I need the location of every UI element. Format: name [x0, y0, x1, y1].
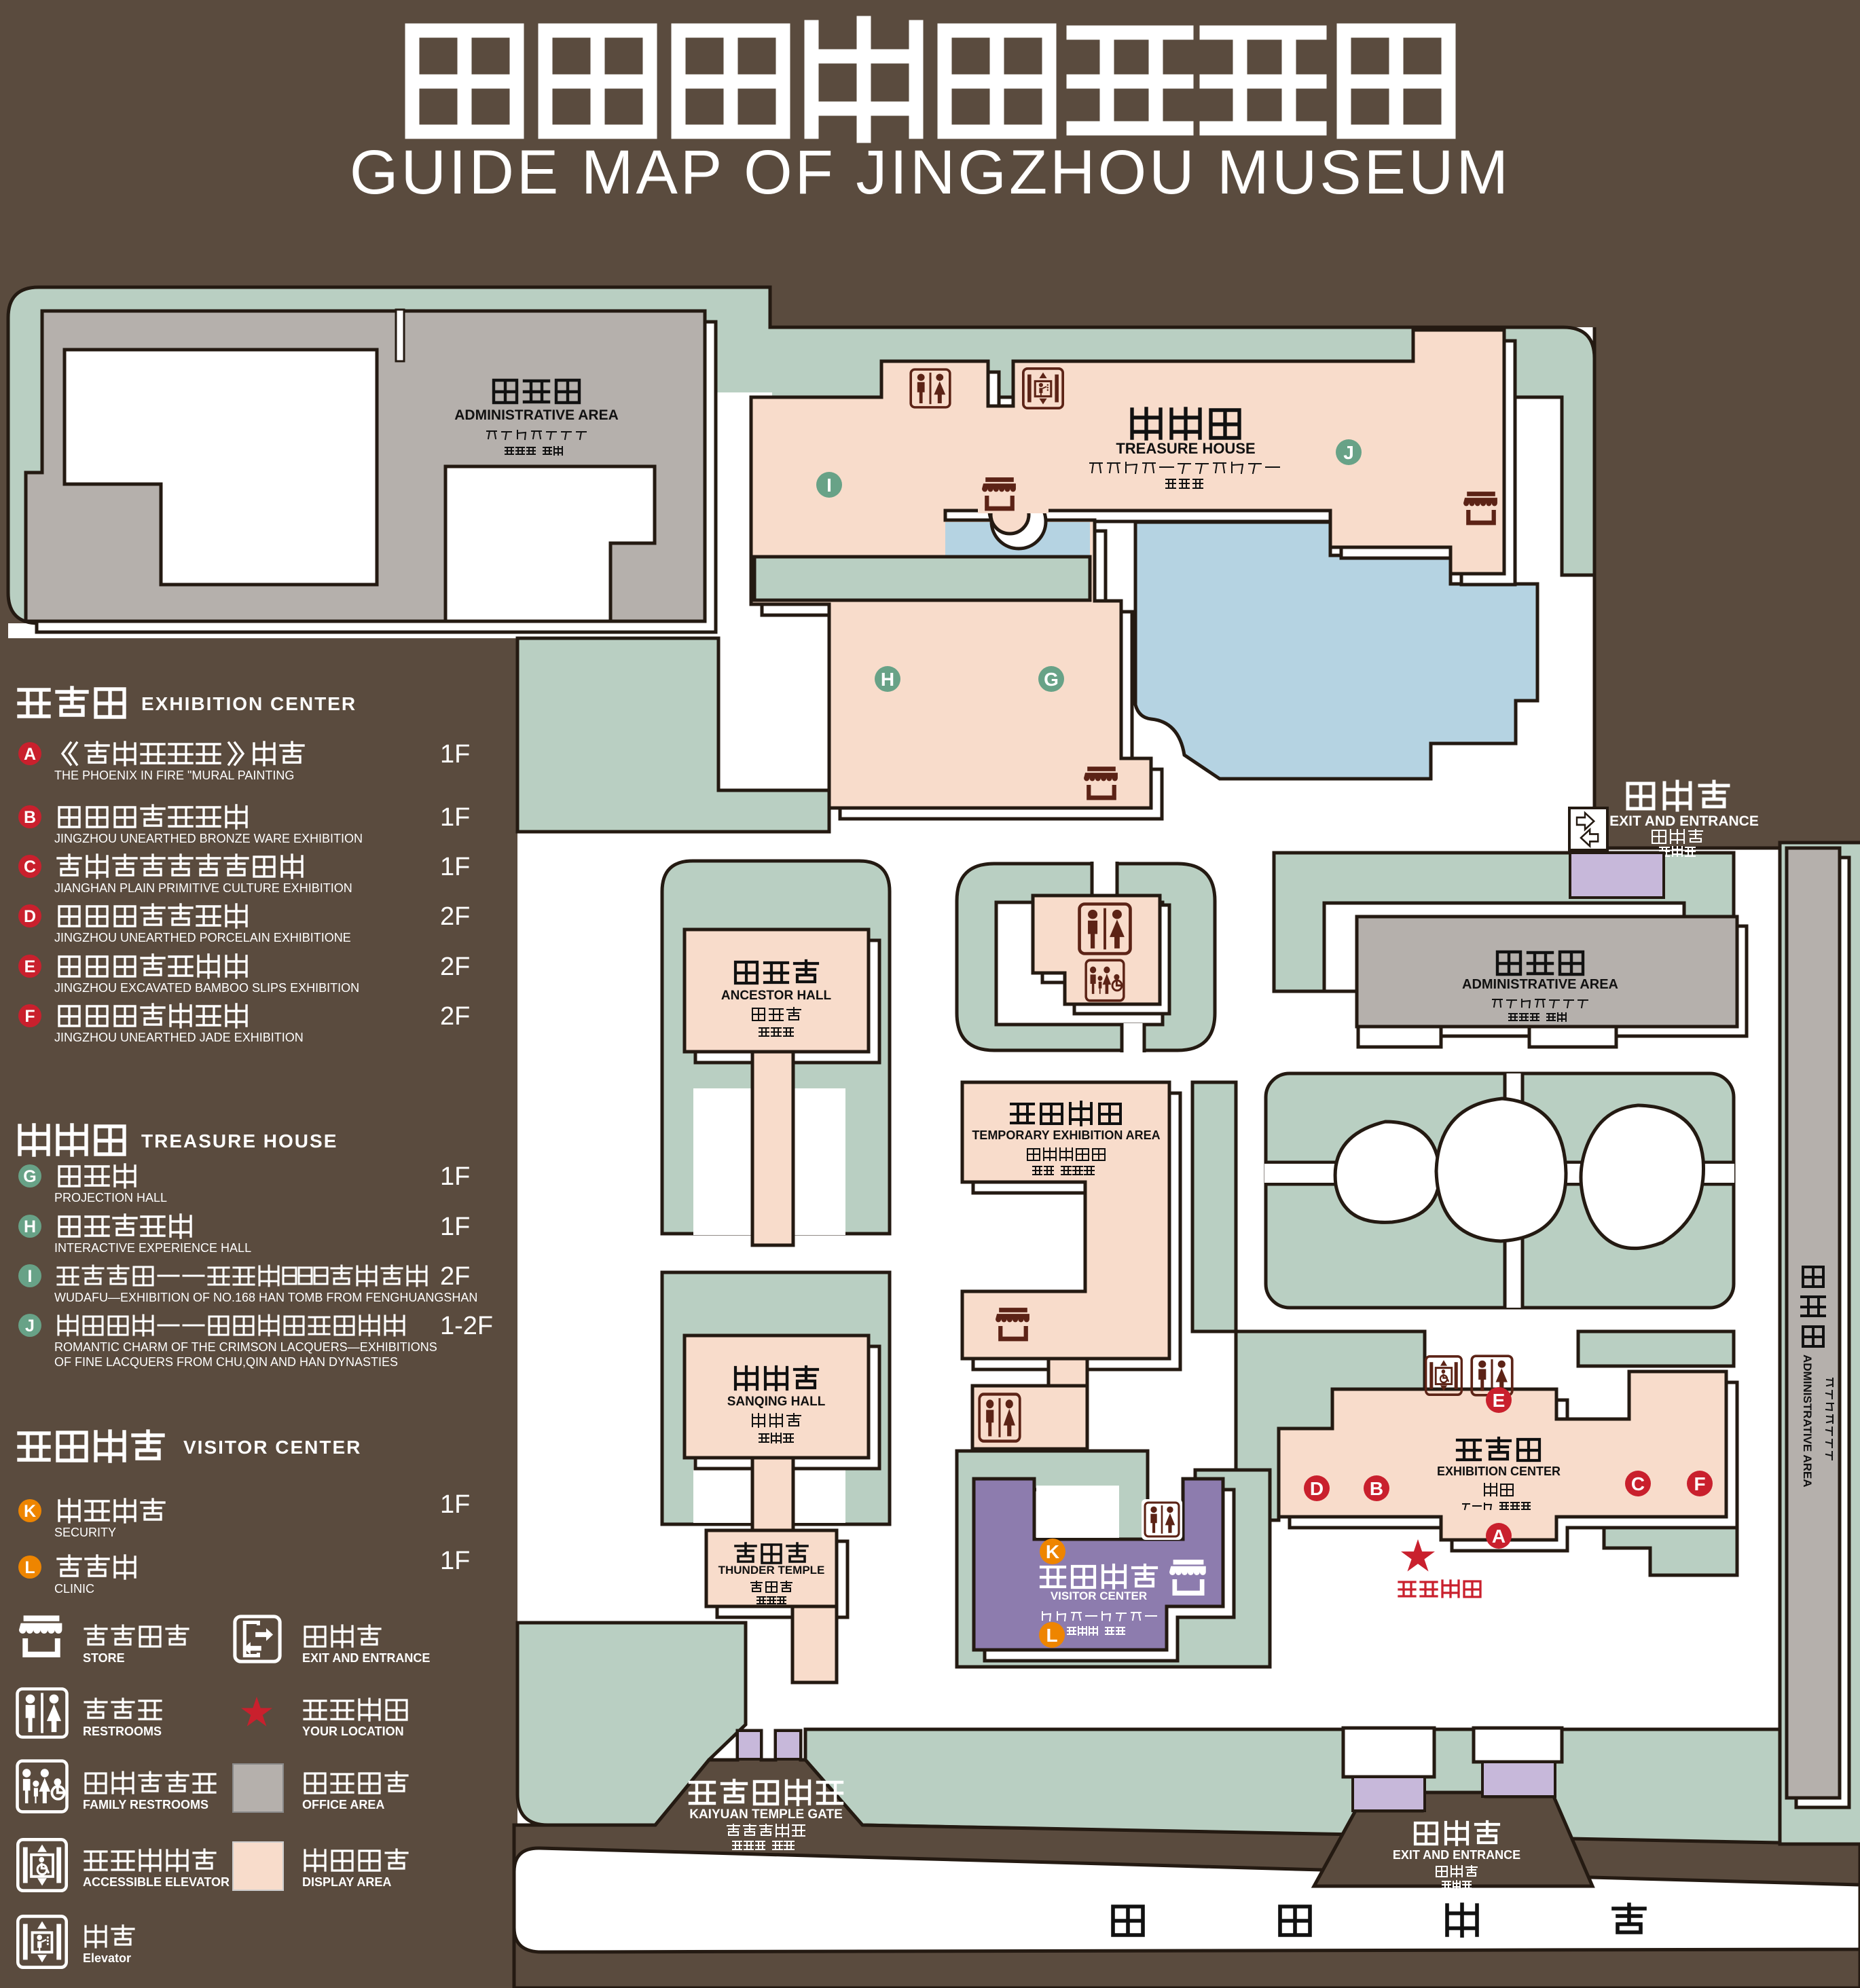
svg-text:INTERACTIVE EXPERIENCE HALL: INTERACTIVE EXPERIENCE HALL — [54, 1241, 251, 1255]
svg-text:JINGZHOU UNEARTHED PORCELAIN E: JINGZHOU UNEARTHED PORCELAIN EXHIBITIONE — [54, 931, 351, 944]
svg-text:OF FINE LACQUERS FROM CHU,QIN: OF FINE LACQUERS FROM CHU,QIN AND HAN DY… — [54, 1355, 398, 1369]
svg-text:ADMINISTRATIVE AREA: ADMINISTRATIVE AREA — [1801, 1355, 1814, 1488]
svg-text:2F: 2F — [440, 1002, 470, 1031]
svg-text:JINGZHOU UNEARTHED JADE EXHIBI: JINGZHOU UNEARTHED JADE EXHIBITION — [54, 1031, 304, 1044]
svg-text:STORE: STORE — [83, 1651, 125, 1665]
svg-text:KAIYUAN TEMPLE GATE: KAIYUAN TEMPLE GATE — [689, 1807, 843, 1822]
svg-text:THUNDER TEMPLE: THUNDER TEMPLE — [718, 1564, 825, 1577]
svg-text:I: I — [28, 1267, 33, 1286]
svg-text:1F: 1F — [440, 1213, 470, 1241]
svg-text:JIANGHAN PLAIN PRIMITIVE CULTU: JIANGHAN PLAIN PRIMITIVE CULTURE EXHIBIT… — [54, 881, 352, 895]
svg-text:2F: 2F — [440, 1262, 470, 1291]
svg-text:ROMANTIC CHARM OF THE CRIMSON: ROMANTIC CHARM OF THE CRIMSON LACQUERS—E… — [54, 1340, 437, 1354]
svg-text:J: J — [25, 1317, 35, 1336]
svg-text:L: L — [1046, 1625, 1057, 1646]
svg-text:ADMINISTRATIVE AREA: ADMINISTRATIVE AREA — [1462, 977, 1618, 992]
svg-text:JINGZHOU EXCAVATED BAMBOO SLIP: JINGZHOU EXCAVATED BAMBOO SLIPS EXHIBITI… — [54, 981, 359, 995]
svg-text:EXHIBITION CENTER: EXHIBITION CENTER — [141, 693, 357, 714]
svg-text:SECURITY: SECURITY — [54, 1526, 116, 1539]
svg-text:EXIT AND ENTRANCE: EXIT AND ENTRANCE — [1609, 813, 1759, 829]
svg-text:F: F — [1694, 1473, 1705, 1494]
svg-text:SANQING HALL: SANQING HALL — [727, 1395, 826, 1409]
svg-text:1F: 1F — [440, 853, 470, 881]
svg-text:JINGZHOU UNEARTHED BRONZE WARE: JINGZHOU UNEARTHED BRONZE WARE EXHIBITIO… — [54, 832, 363, 845]
svg-text:B: B — [1370, 1478, 1383, 1499]
svg-text:1F: 1F — [440, 1547, 470, 1575]
svg-text:L: L — [24, 1558, 35, 1577]
svg-text:Elevator: Elevator — [83, 1951, 131, 1965]
svg-text:F: F — [24, 1007, 35, 1026]
svg-text:TREASURE HOUSE: TREASURE HOUSE — [141, 1130, 338, 1152]
svg-text:ACCESSIBLE ELEVATOR: ACCESSIBLE ELEVATOR — [83, 1875, 230, 1889]
svg-text:1F: 1F — [440, 803, 470, 832]
svg-text:ADMINISTRATIVE AREA: ADMINISTRATIVE AREA — [454, 407, 619, 423]
svg-text:G: G — [23, 1167, 36, 1186]
svg-text:H: H — [881, 669, 894, 690]
svg-text:1F: 1F — [440, 1490, 470, 1519]
svg-text:WUDAFU—EXHIBITION OF NO.168 HA: WUDAFU—EXHIBITION OF NO.168 HAN TOMB FRO… — [54, 1291, 477, 1304]
svg-text:E: E — [1493, 1390, 1506, 1411]
svg-text:A: A — [24, 745, 36, 764]
svg-text:I: I — [826, 475, 832, 496]
svg-text:A: A — [1492, 1526, 1506, 1547]
svg-text:VISITOR CENTER: VISITOR CENTER — [1051, 1589, 1147, 1602]
svg-text:1F: 1F — [440, 740, 470, 769]
svg-text:CLINIC: CLINIC — [54, 1582, 94, 1596]
svg-text:B: B — [24, 808, 36, 827]
svg-text:EXIT AND ENTRANCE: EXIT AND ENTRANCE — [302, 1651, 430, 1665]
svg-text:D: D — [24, 907, 36, 926]
svg-text:K: K — [1046, 1541, 1059, 1562]
svg-text:OFFICE AREA: OFFICE AREA — [302, 1798, 384, 1811]
svg-text:VISITOR CENTER: VISITOR CENTER — [183, 1437, 361, 1458]
svg-text:J: J — [1343, 442, 1354, 463]
svg-text:YOUR LOCATION: YOUR LOCATION — [302, 1725, 404, 1738]
svg-text:THE PHOENIX IN FIRE "MURAL PAI: THE PHOENIX IN FIRE "MURAL PAINTING — [54, 769, 294, 782]
svg-text:2F: 2F — [440, 953, 470, 981]
svg-text:TREASURE HOUSE: TREASURE HOUSE — [1116, 440, 1255, 457]
svg-text:C: C — [24, 858, 36, 877]
svg-text:C: C — [1631, 1473, 1645, 1494]
svg-text:PROJECTION HALL: PROJECTION HALL — [54, 1191, 167, 1204]
svg-text:1-2F: 1-2F — [440, 1312, 493, 1340]
svg-text:RESTROOMS: RESTROOMS — [83, 1725, 162, 1738]
svg-text:FAMILY RESTROOMS: FAMILY RESTROOMS — [83, 1798, 208, 1811]
svg-text:E: E — [24, 957, 36, 976]
svg-text:D: D — [1310, 1478, 1324, 1499]
svg-text:H: H — [24, 1217, 36, 1236]
svg-text:GUIDE MAP OF JINGZHOU MUSEUM: GUIDE MAP OF JINGZHOU MUSEUM — [350, 138, 1511, 207]
svg-text:2F: 2F — [440, 902, 470, 931]
svg-text:K: K — [24, 1502, 36, 1521]
svg-text:EXHIBITION CENTER: EXHIBITION CENTER — [1437, 1465, 1561, 1478]
svg-text:ANCESTOR HALL: ANCESTOR HALL — [721, 989, 832, 1003]
svg-text:G: G — [1044, 669, 1059, 690]
svg-text:1F: 1F — [440, 1162, 470, 1191]
svg-text:TEMPORARY EXHIBITION AREA: TEMPORARY EXHIBITION AREA — [972, 1128, 1160, 1142]
svg-text:EXIT AND ENTRANCE: EXIT AND ENTRANCE — [1393, 1848, 1520, 1862]
svg-text:DISPLAY AREA: DISPLAY AREA — [302, 1875, 391, 1889]
